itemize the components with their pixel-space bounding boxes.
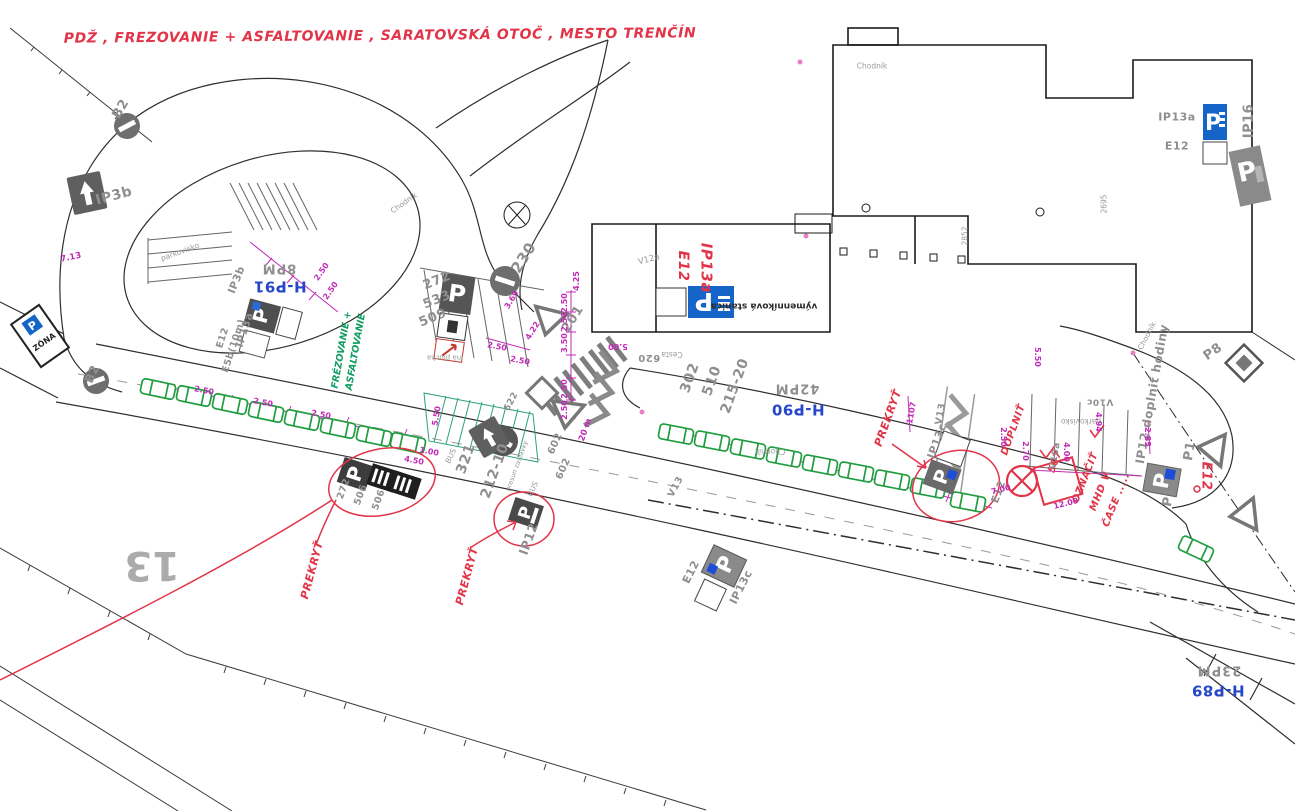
dim-5.50: 5.50 xyxy=(1033,347,1041,367)
sign-code-ip16: IP16 xyxy=(1243,104,1256,138)
parked-cars-row-left xyxy=(140,378,426,454)
note-e12-red-right: E12 xyxy=(1200,462,1213,491)
building-number-2852: 2852 xyxy=(961,226,969,245)
dim-2.50: 2.50 xyxy=(561,379,569,399)
dim-4.00: 4.00 xyxy=(1062,442,1070,462)
sign-code-ip13a: IP13a xyxy=(1158,112,1195,123)
dim-5.00: 5.00 xyxy=(608,342,628,350)
place-chodnik: Chodník xyxy=(857,62,888,70)
building-number-2695: 2695 xyxy=(1100,194,1108,213)
note-e12-red-center: E12 xyxy=(676,251,690,282)
parking-cap-hp91: 8PM xyxy=(262,262,297,275)
svg-text:P: P xyxy=(1205,111,1221,136)
note-ip13a-red: IP13a xyxy=(699,243,714,294)
parcel-number: 13 xyxy=(124,545,180,585)
parking-id-hp89: H-P89 xyxy=(1191,683,1244,698)
dim-4.25: 4.25 xyxy=(573,271,581,291)
dim-2.50: 2.50 xyxy=(561,312,569,332)
dim-2.70: 2.70 xyxy=(1021,441,1029,461)
place-cesta: Cesta xyxy=(661,350,682,358)
parked-car-single xyxy=(1177,535,1214,563)
plan-number-620: 620 xyxy=(638,352,660,362)
sign-code-p1: P1 xyxy=(1182,440,1198,462)
parking-sign-blue-top-right: P xyxy=(1203,104,1227,164)
dim-2.50: 2.50 xyxy=(561,293,569,313)
dim-4.94: 4.94 xyxy=(1094,412,1102,432)
sign-code-e12: E12 xyxy=(1165,141,1189,152)
dim-2.50: 2.50 xyxy=(561,400,569,420)
parking-id-hp91: H-P91 xyxy=(253,279,306,294)
site-plan: P ZÓNA P P P P P xyxy=(0,0,1295,811)
sign-code-p1: P1 xyxy=(1161,486,1177,508)
white-panel-sign xyxy=(656,288,686,316)
red-ink-marks xyxy=(0,425,1200,680)
parking-cap-hp90: 42PM xyxy=(775,382,820,395)
zone-parking-sign: P ZÓNA xyxy=(11,305,69,367)
dim-2.50: 2.50 xyxy=(999,427,1007,447)
diamond-sign-p8 xyxy=(1226,345,1263,382)
dim-3.50: 3.50 xyxy=(561,333,569,353)
place-ina-plocha: iná plocha xyxy=(427,354,463,361)
place-vymennikova-stanica: výmenníková stanica xyxy=(711,301,818,310)
buildings xyxy=(504,28,1252,332)
parking-sign-ip16: P xyxy=(1229,145,1272,206)
place-chodnik: Chodník xyxy=(755,447,786,455)
parking-cap-hp89: 23PM xyxy=(1197,664,1242,677)
parking-id-hp90: H-P90 xyxy=(771,402,824,417)
dim-2.85: 2.85 xyxy=(1143,427,1151,447)
sign-code-v10c: V10c xyxy=(1087,397,1114,406)
